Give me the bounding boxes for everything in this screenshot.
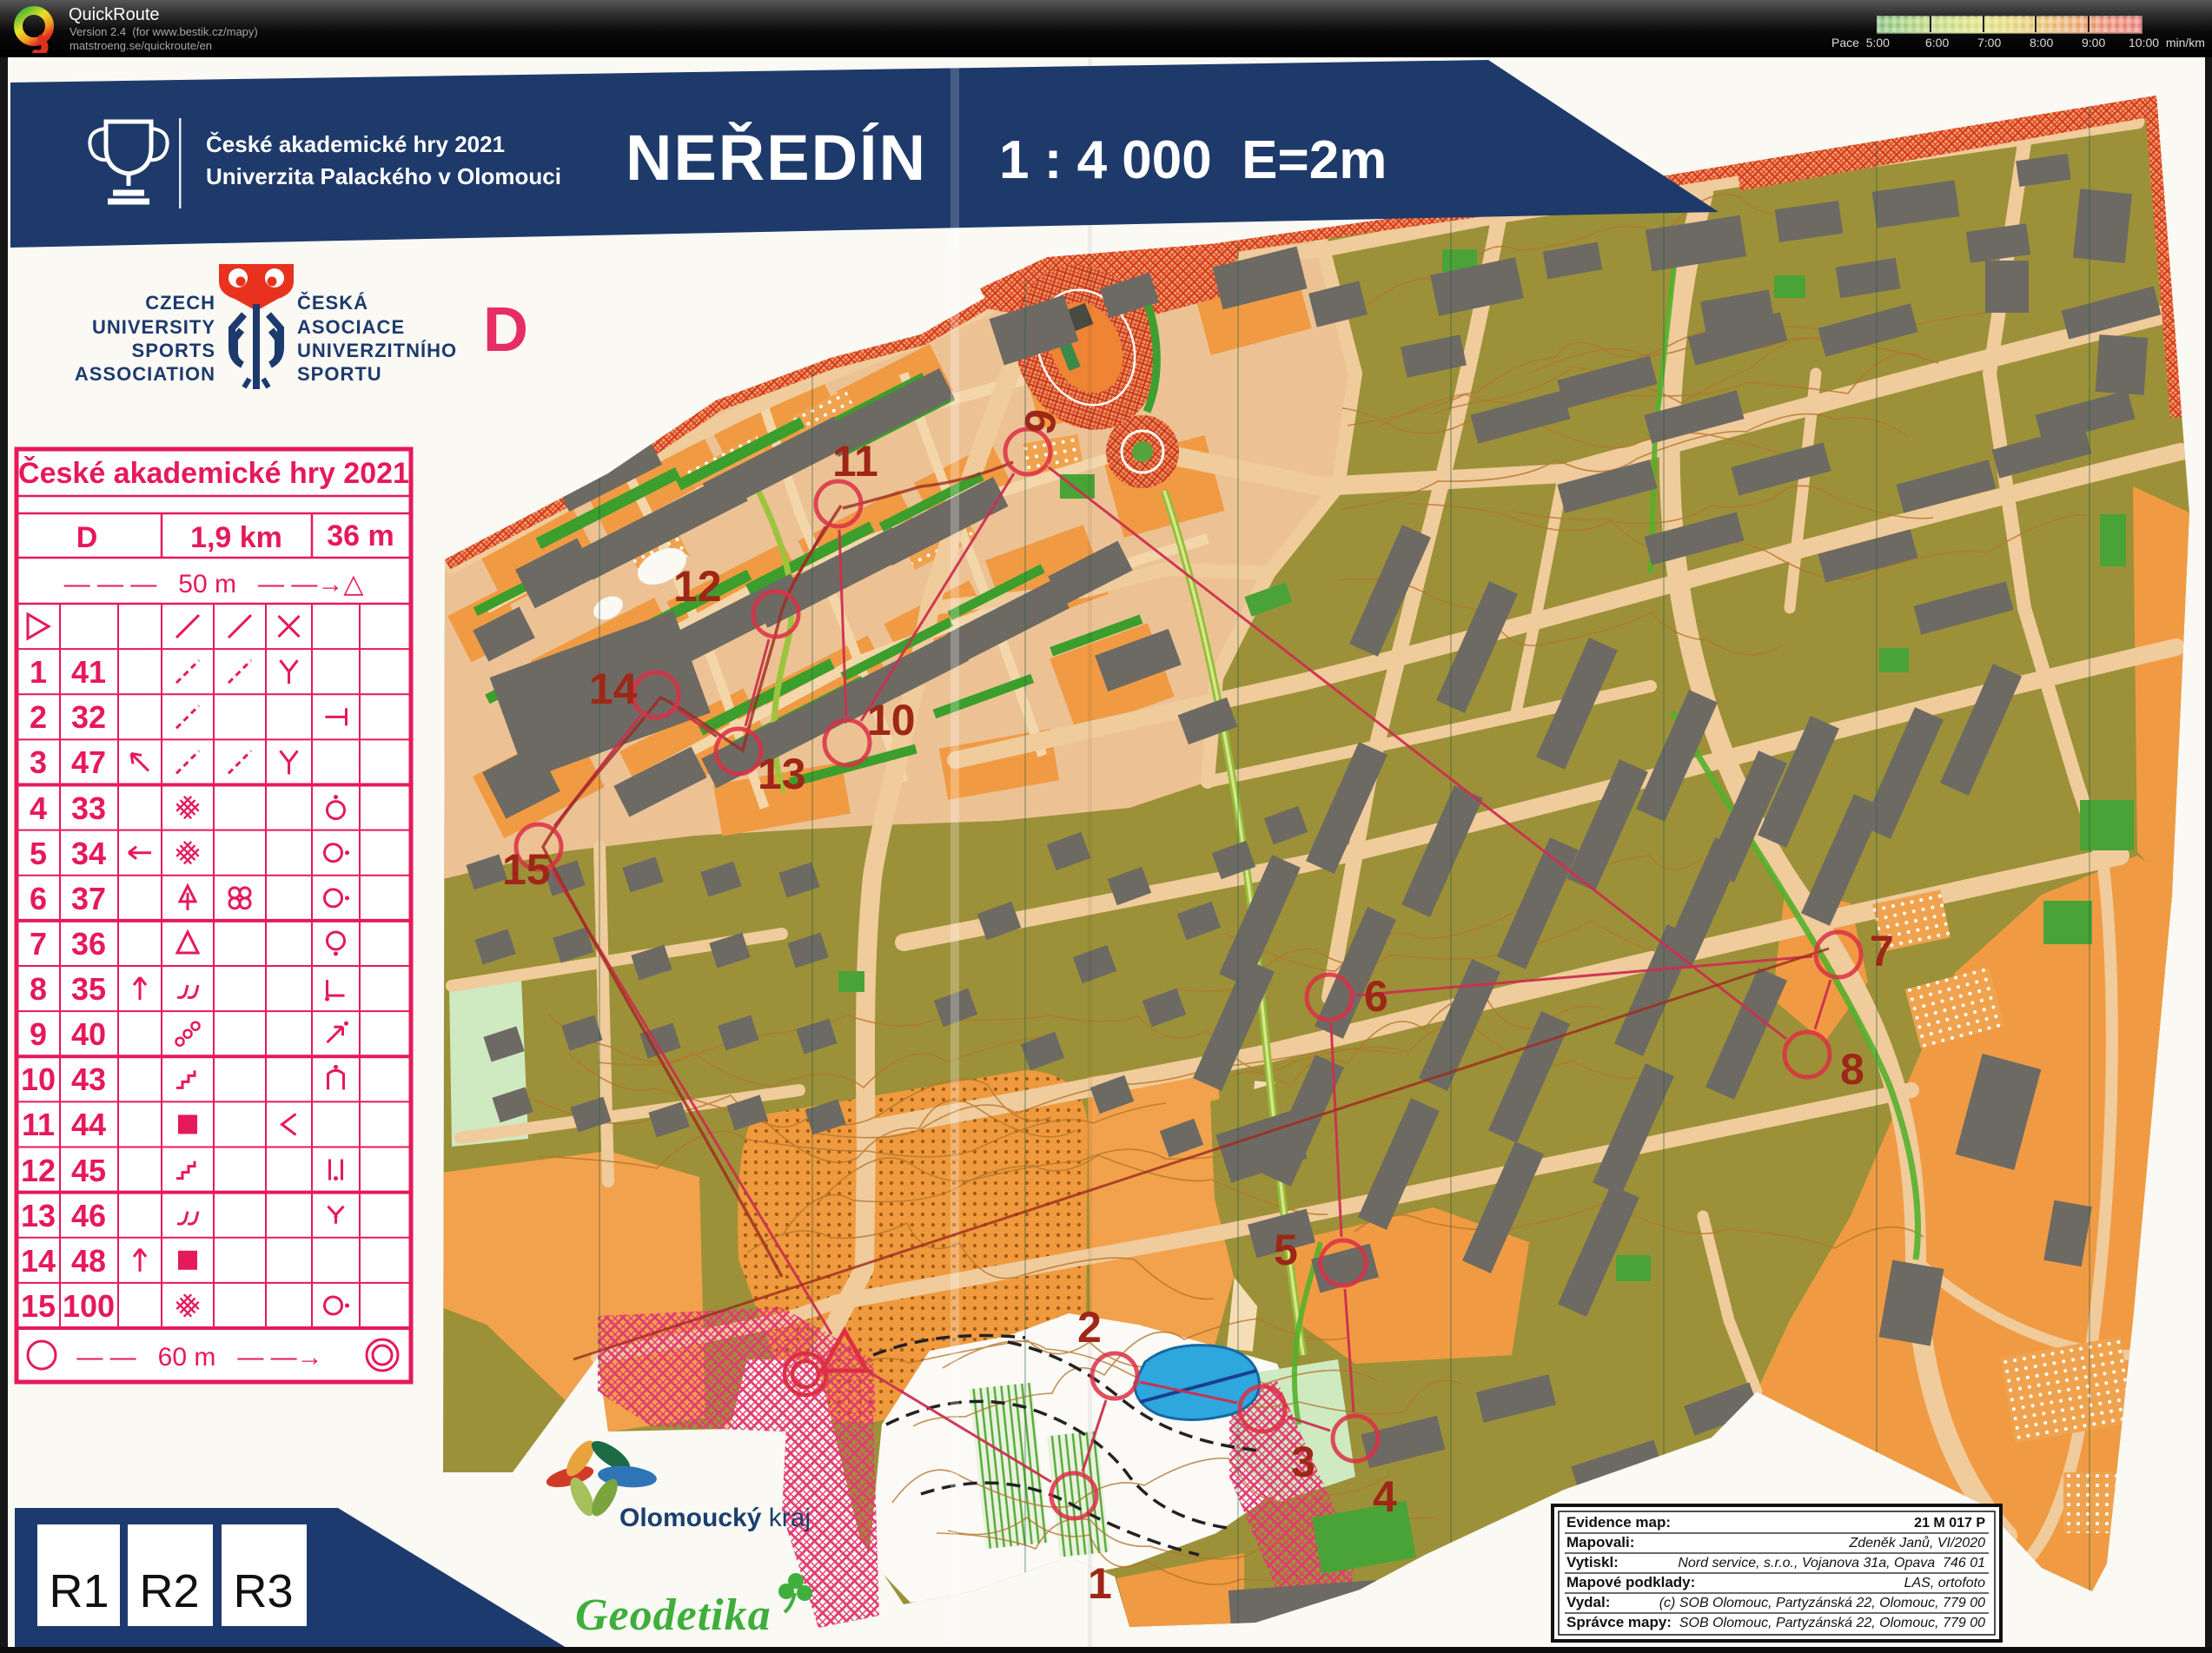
svg-text:1: 1 xyxy=(30,654,47,690)
svg-text:45: 45 xyxy=(71,1153,106,1188)
svg-text:6: 6 xyxy=(30,881,47,916)
svg-text:(c) SOB Olomouc, Partyzánská 2: (c) SOB Olomouc, Partyzánská 22, Olomouc… xyxy=(1659,1596,1985,1610)
svg-text:2: 2 xyxy=(30,699,47,735)
svg-text:7: 7 xyxy=(30,926,47,962)
svg-text:Olomoucký kraj: Olomoucký kraj xyxy=(619,1504,811,1532)
svg-text:11: 11 xyxy=(832,437,878,486)
svg-text:3: 3 xyxy=(1291,1438,1315,1486)
svg-text:— — — 50 m — —→△: — — — 50 m — —→△ xyxy=(64,570,364,598)
svg-text:ASOCIACE: ASOCIACE xyxy=(297,316,405,338)
svg-text:14: 14 xyxy=(589,665,638,713)
svg-text:8: 8 xyxy=(1840,1045,1864,1094)
svg-text:40: 40 xyxy=(71,1016,106,1052)
svg-text:46: 46 xyxy=(71,1198,106,1233)
svg-text:1: 1 xyxy=(1088,1559,1112,1608)
svg-text:R2: R2 xyxy=(139,1565,199,1617)
svg-text:1 : 4 000 E=2m: 1 : 4 000 E=2m xyxy=(999,130,1387,190)
svg-text:ČESKÁ: ČESKÁ xyxy=(297,292,368,314)
svg-text:32: 32 xyxy=(71,699,106,735)
svg-text:34: 34 xyxy=(71,836,106,871)
svg-text:9: 9 xyxy=(30,1016,47,1052)
svg-text:Evidence map:: Evidence map: xyxy=(1566,1514,1671,1531)
svg-text:6: 6 xyxy=(1364,972,1388,1021)
svg-text:Vydal:: Vydal: xyxy=(1566,1594,1610,1610)
svg-text:12: 12 xyxy=(21,1153,56,1188)
svg-text:LAS, ortofoto: LAS, ortofoto xyxy=(1904,1576,1985,1590)
svg-text:České akademické hry 2021: České akademické hry 2021 xyxy=(206,131,505,157)
svg-text:43: 43 xyxy=(71,1061,106,1097)
svg-text:1,9 km: 1,9 km xyxy=(190,521,282,554)
svg-text:— — 60 m — —→: — — 60 m — —→ xyxy=(76,1343,322,1372)
svg-text:3: 3 xyxy=(30,744,47,780)
svg-text:D: D xyxy=(483,295,528,365)
svg-text:R3: R3 xyxy=(233,1565,293,1617)
svg-text:13: 13 xyxy=(21,1198,56,1233)
svg-text:5: 5 xyxy=(1274,1226,1298,1274)
svg-text:21 M 017 P: 21 M 017 P xyxy=(1914,1516,1985,1531)
svg-text:15: 15 xyxy=(502,845,551,894)
svg-text:100: 100 xyxy=(63,1288,115,1324)
svg-text:NEŘEDÍN: NEŘEDÍN xyxy=(626,122,927,194)
svg-text:4: 4 xyxy=(1373,1472,1397,1521)
svg-text:8: 8 xyxy=(30,971,47,1007)
svg-text:Nord service, s.r.o., Vojanova: Nord service, s.r.o., Vojanova 31a, Opav… xyxy=(1678,1556,1985,1570)
svg-text:UNIVERZITNÍHO: UNIVERZITNÍHO xyxy=(297,340,457,361)
svg-text:SOB Olomouc, Partyzánská 22, O: SOB Olomouc, Partyzánská 22, Olomouc, 77… xyxy=(1679,1616,1985,1630)
svg-text:36: 36 xyxy=(71,926,106,962)
svg-text:12: 12 xyxy=(673,562,722,611)
svg-text:Univerzita Palackého v Olomouc: Univerzita Palackého v Olomouci xyxy=(206,163,561,189)
svg-text:15: 15 xyxy=(21,1288,56,1324)
svg-text:ASSOCIATION: ASSOCIATION xyxy=(75,363,215,385)
svg-text:České akademické hry 2021: České akademické hry 2021 xyxy=(18,456,409,490)
svg-text:11: 11 xyxy=(22,1107,55,1142)
svg-text:35: 35 xyxy=(71,971,106,1007)
svg-text:SPORTS: SPORTS xyxy=(132,340,215,361)
svg-text:37: 37 xyxy=(71,881,106,916)
svg-text:Zdeněk Janů, VI/2020: Zdeněk Janů, VI/2020 xyxy=(1848,1535,1985,1551)
svg-text:13: 13 xyxy=(758,750,806,798)
svg-text:4: 4 xyxy=(30,790,47,826)
svg-text:36 m: 36 m xyxy=(327,519,394,552)
svg-text:2: 2 xyxy=(1077,1303,1102,1352)
svg-text:Geodetika: Geodetika xyxy=(575,1590,772,1640)
svg-text:14: 14 xyxy=(21,1243,56,1279)
svg-text:33: 33 xyxy=(71,790,106,826)
svg-text:SPORTU: SPORTU xyxy=(297,363,382,385)
svg-text:44: 44 xyxy=(71,1107,106,1142)
svg-text:R1: R1 xyxy=(49,1565,109,1617)
svg-text:10: 10 xyxy=(21,1061,56,1097)
svg-text:Mapové podklady:: Mapové podklady: xyxy=(1566,1574,1695,1590)
svg-text:Vytiskl:: Vytiskl: xyxy=(1566,1554,1619,1570)
svg-text:10: 10 xyxy=(867,696,916,744)
svg-text:5: 5 xyxy=(30,836,47,871)
svg-text:Správce mapy:: Správce mapy: xyxy=(1566,1614,1672,1630)
svg-text:7: 7 xyxy=(1870,927,1894,975)
svg-text:CZECH: CZECH xyxy=(145,292,215,314)
svg-text:Mapovali:: Mapovali: xyxy=(1566,1534,1634,1551)
svg-text:47: 47 xyxy=(71,744,106,780)
svg-text:UNIVERSITY: UNIVERSITY xyxy=(92,316,215,338)
svg-text:41: 41 xyxy=(71,654,106,690)
svg-text:D: D xyxy=(76,521,98,554)
svg-text:48: 48 xyxy=(71,1243,106,1279)
